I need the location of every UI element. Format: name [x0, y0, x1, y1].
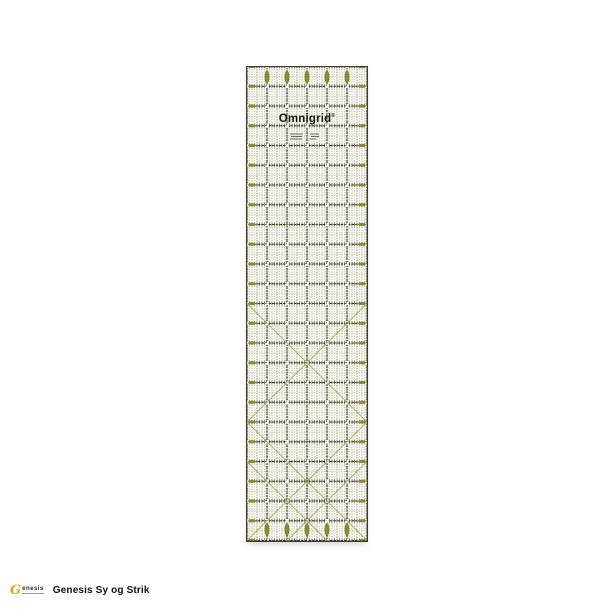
- grid-intersection-dots: [247, 67, 367, 541]
- ruler-grid-graphic: [246, 66, 368, 542]
- product-photo: Omnigrid® G enesis Genesis Sy og Strik: [0, 0, 610, 610]
- ruler-product-image: Omnigrid®: [246, 66, 368, 542]
- genesis-logo-icon: G enesis: [10, 584, 44, 597]
- seller-branding: G enesis Genesis Sy og Strik: [10, 582, 150, 598]
- seller-name: Genesis Sy og Strik: [53, 585, 150, 596]
- genesis-logo-wordmark: enesis: [22, 586, 44, 594]
- genesis-logo-initial: G: [10, 584, 21, 597]
